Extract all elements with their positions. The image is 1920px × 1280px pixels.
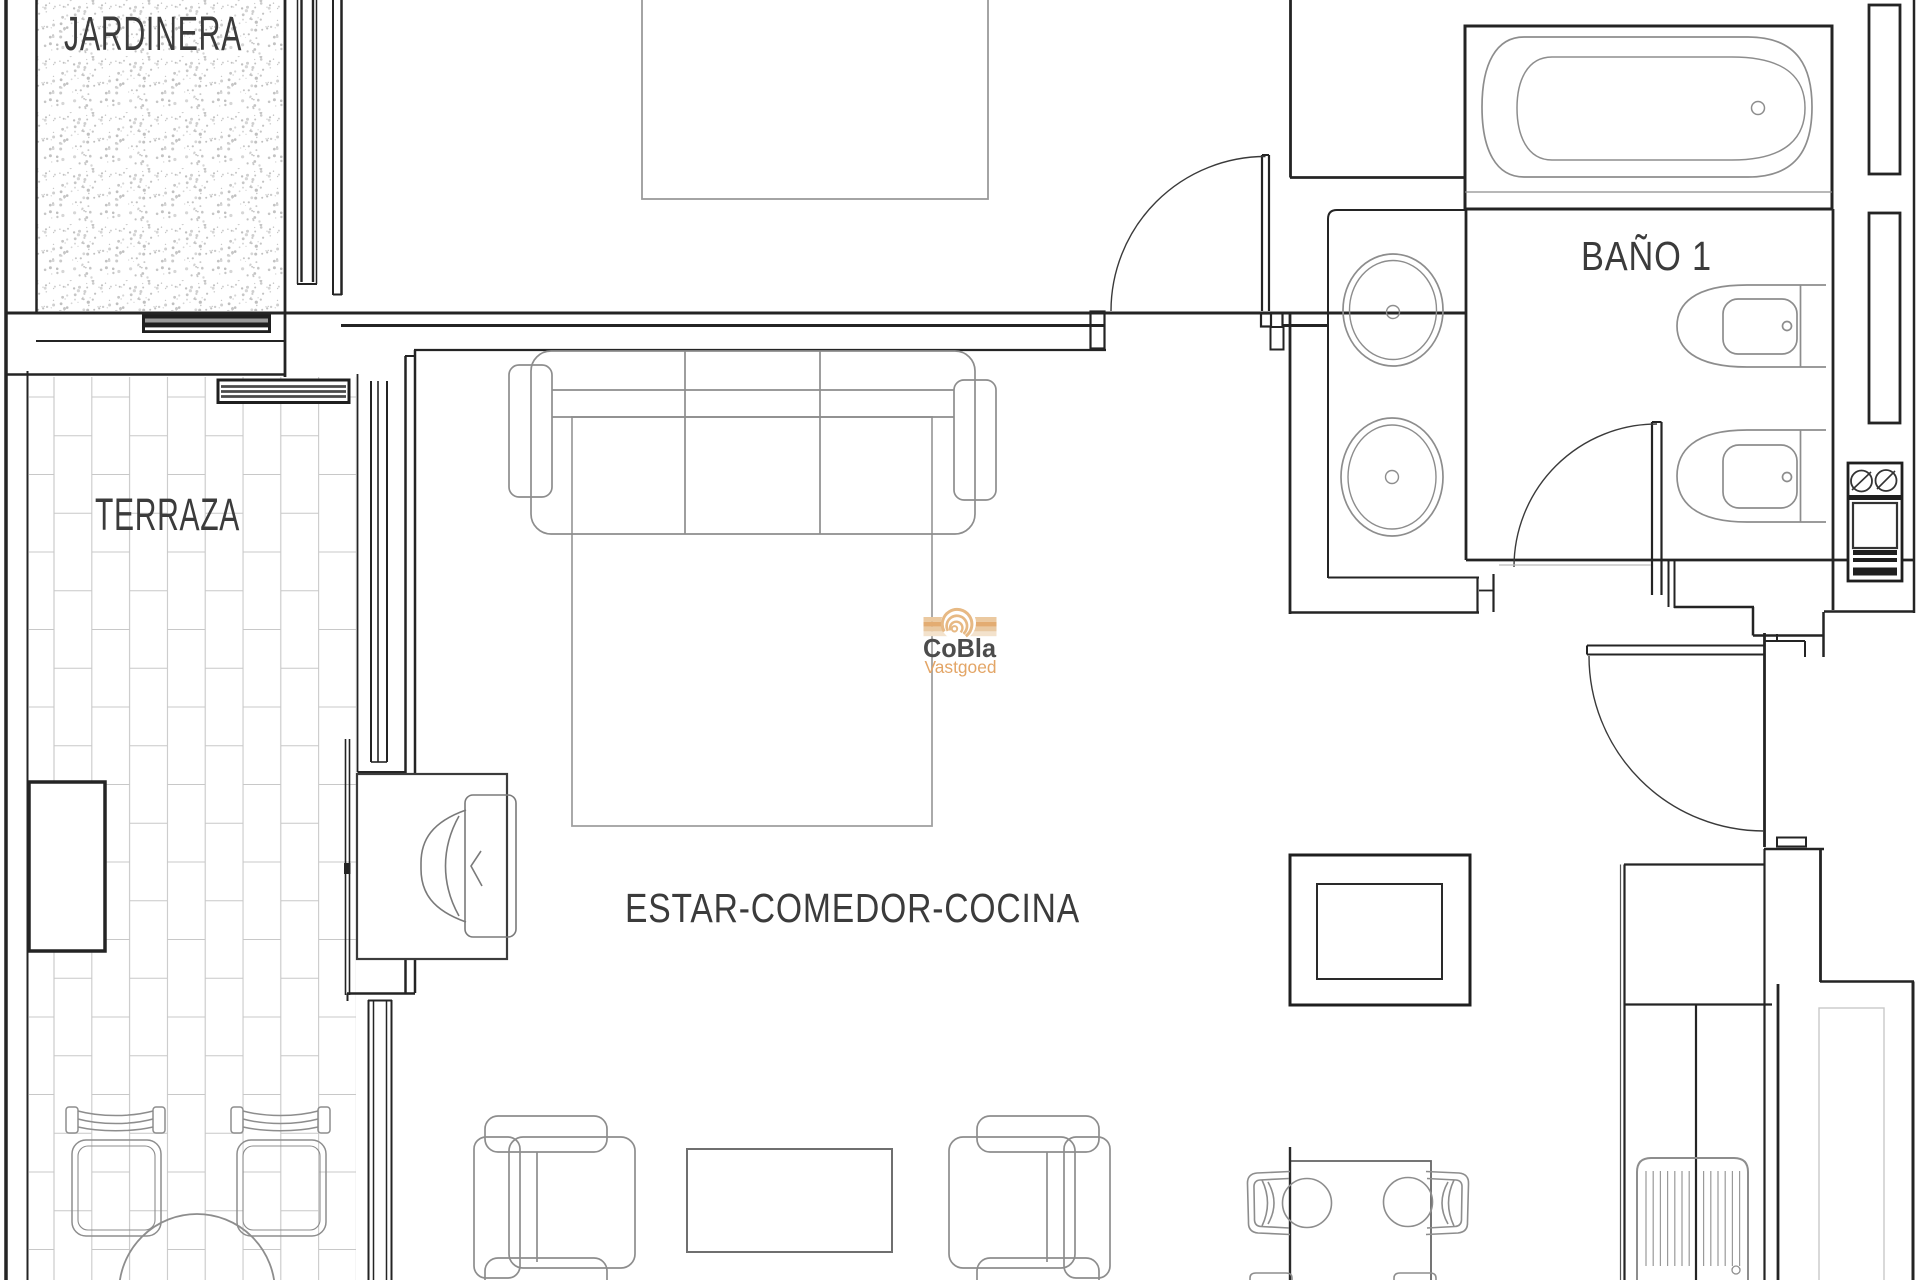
svg-text:TERRAZA: TERRAZA (95, 489, 240, 540)
svg-text:JARDINERA: JARDINERA (64, 8, 242, 61)
svg-text:BAÑO 1: BAÑO 1 (1581, 233, 1712, 279)
svg-text:ESTAR-COMEDOR-COCINA: ESTAR-COMEDOR-COCINA (625, 885, 1080, 931)
svg-text:Vastgoed: Vastgoed (925, 657, 997, 677)
